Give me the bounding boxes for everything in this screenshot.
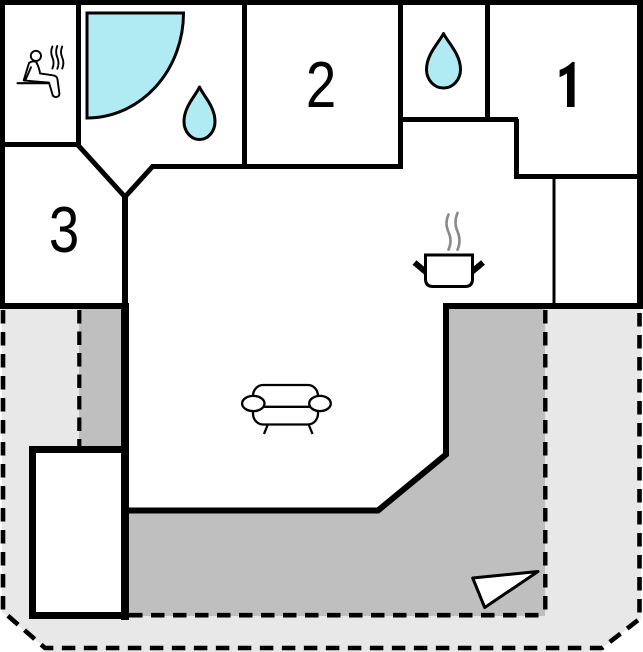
svg-text:3: 3 xyxy=(49,194,79,267)
svg-text:2: 2 xyxy=(306,49,336,122)
